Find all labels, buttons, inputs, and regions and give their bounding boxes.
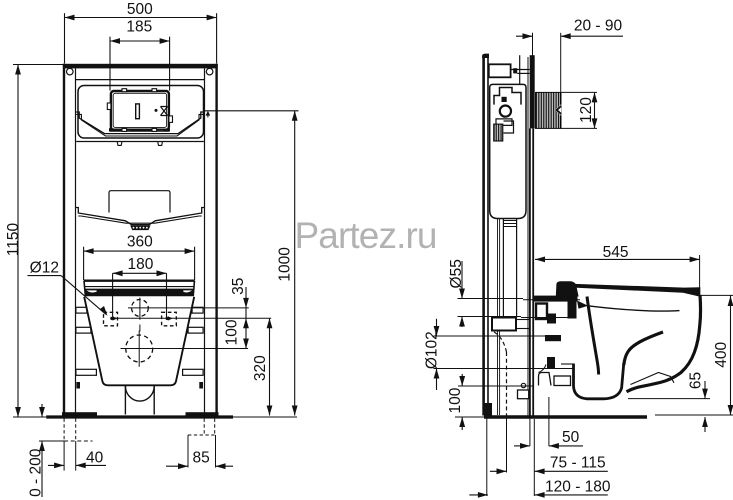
svg-text:20 - 90: 20 - 90 — [574, 18, 623, 35]
svg-text:75 - 115: 75 - 115 — [550, 454, 606, 471]
svg-text:85: 85 — [192, 450, 209, 467]
svg-text:100: 100 — [224, 319, 241, 345]
svg-text:65: 65 — [687, 372, 704, 389]
svg-text:Ø102: Ø102 — [423, 331, 440, 369]
svg-text:400: 400 — [713, 341, 730, 367]
svg-text:120 - 180: 120 - 180 — [545, 478, 611, 495]
svg-text:320: 320 — [252, 355, 269, 381]
svg-text:180: 180 — [127, 256, 153, 273]
svg-text:100: 100 — [447, 387, 464, 413]
svg-text:500: 500 — [127, 1, 153, 18]
svg-text:50: 50 — [562, 429, 580, 446]
svg-text:35: 35 — [230, 278, 247, 295]
svg-text:545: 545 — [603, 244, 629, 261]
svg-text:Partez.ru: Partez.ru — [295, 215, 438, 256]
svg-text:Ø12: Ø12 — [30, 260, 59, 277]
svg-text:1000: 1000 — [276, 247, 293, 282]
svg-text:1150: 1150 — [5, 222, 22, 256]
svg-text:360: 360 — [127, 233, 153, 250]
svg-text:40: 40 — [86, 450, 104, 467]
svg-text:185: 185 — [126, 18, 152, 35]
